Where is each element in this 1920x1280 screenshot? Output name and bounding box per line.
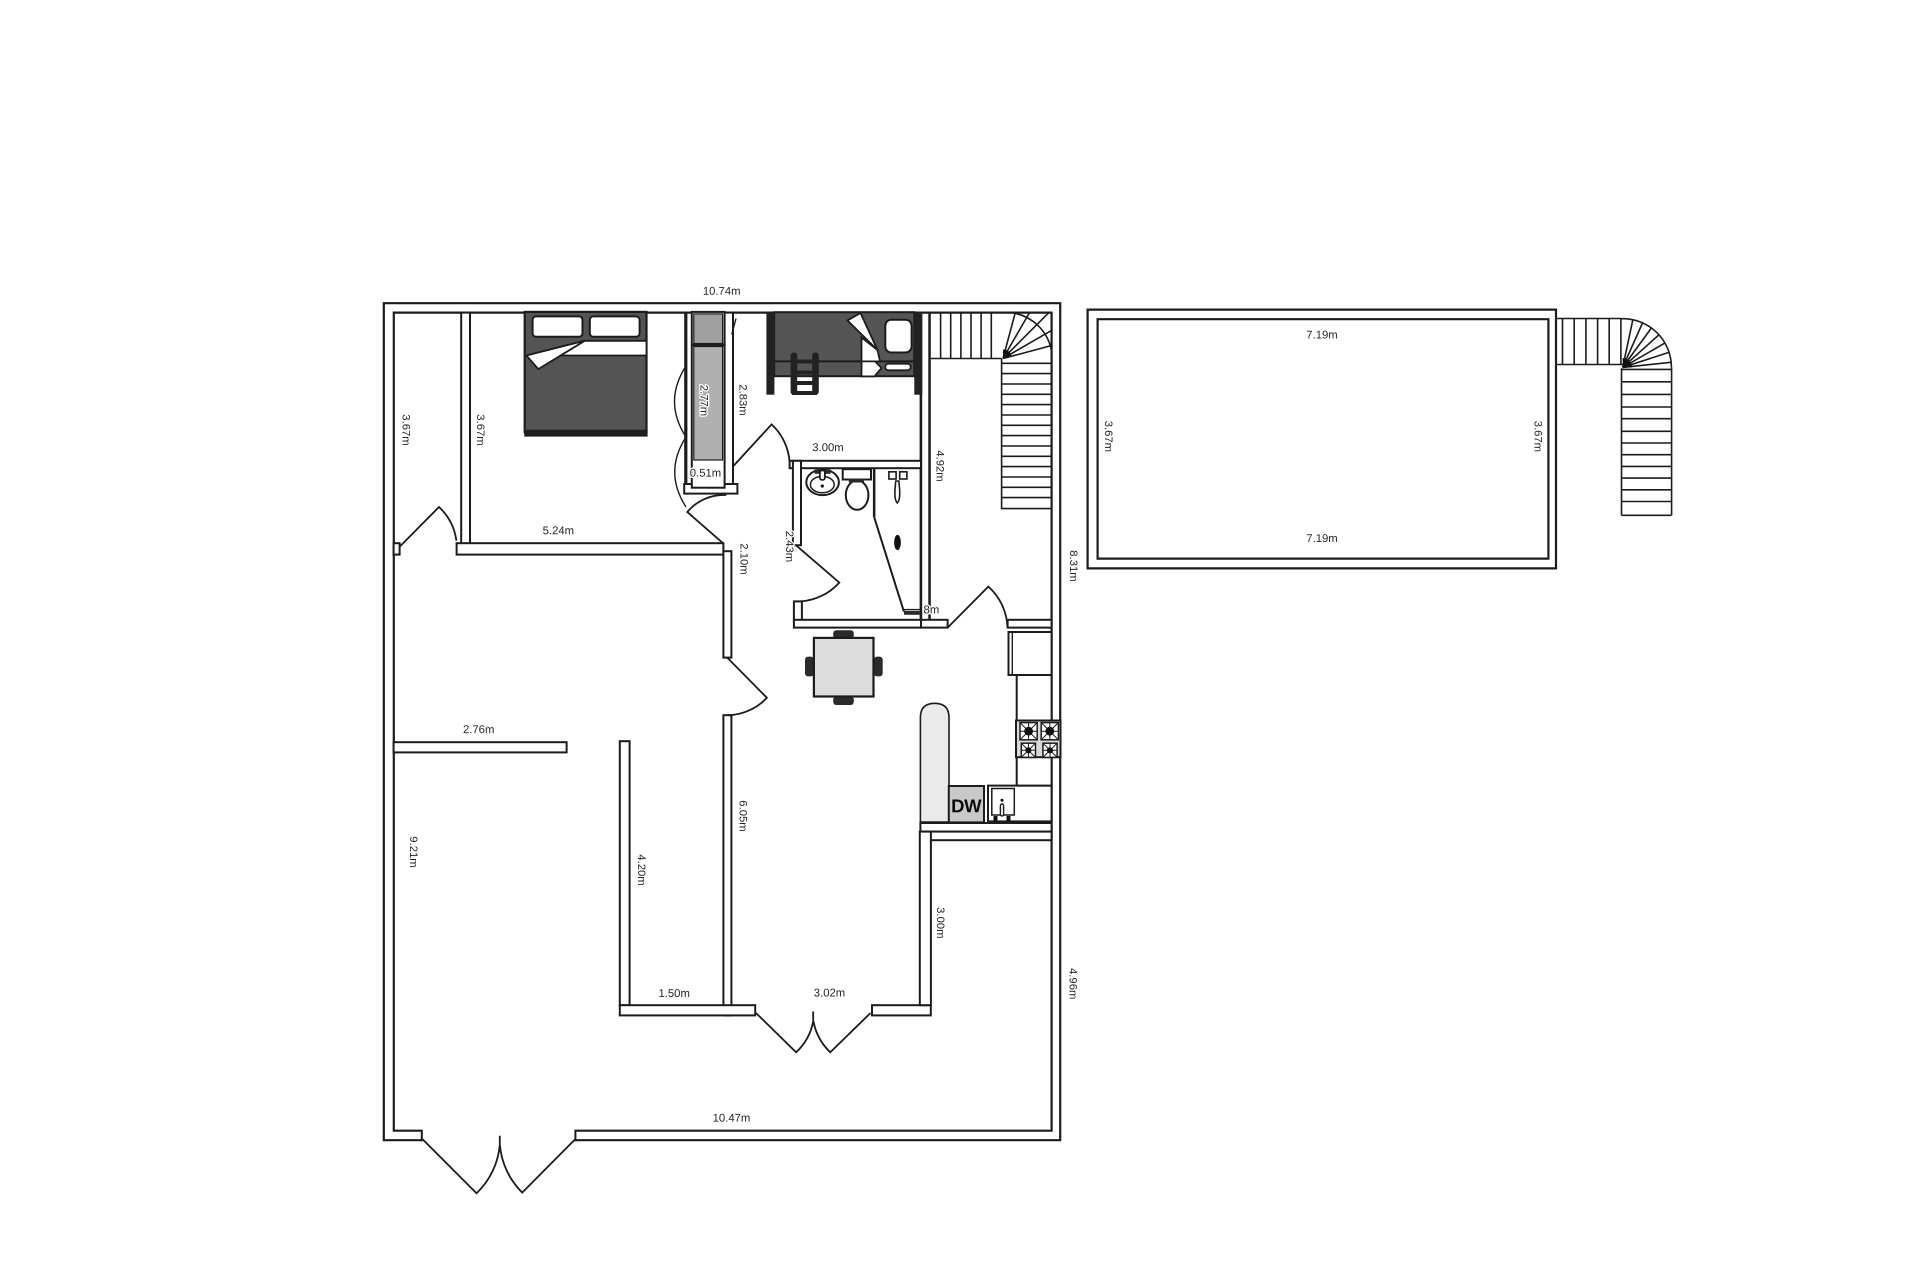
svg-text:8.31m: 8.31m — [1067, 550, 1079, 581]
svg-text:4.20m: 4.20m — [635, 854, 647, 885]
svg-text:6.05m: 6.05m — [736, 800, 748, 831]
svg-text:3.67m: 3.67m — [400, 414, 412, 445]
svg-text:3.00m: 3.00m — [812, 442, 843, 454]
svg-text:8m: 8m — [924, 604, 940, 616]
svg-text:0.51m: 0.51m — [690, 468, 721, 480]
svg-text:1.50m: 1.50m — [658, 988, 689, 1000]
svg-text:3.67m: 3.67m — [1102, 421, 1114, 452]
svg-text:2.10m: 2.10m — [737, 543, 749, 574]
svg-text:5.24m: 5.24m — [543, 525, 574, 537]
svg-text:2.83m: 2.83m — [737, 384, 749, 415]
svg-text:3.02m: 3.02m — [814, 987, 845, 999]
svg-text:4.96m: 4.96m — [1067, 968, 1079, 999]
svg-text:3.67m: 3.67m — [1532, 421, 1544, 452]
svg-text:10.47m: 10.47m — [713, 1113, 751, 1125]
svg-text:10.74m: 10.74m — [703, 286, 741, 298]
svg-text:2.76m: 2.76m — [463, 724, 494, 736]
svg-text:2.43m: 2.43m — [783, 531, 795, 562]
svg-text:9.21m: 9.21m — [407, 836, 419, 867]
svg-text:4.92m: 4.92m — [934, 450, 946, 481]
svg-text:2.77m: 2.77m — [698, 385, 710, 416]
svg-text:3.67m: 3.67m — [474, 414, 486, 445]
svg-text:DW: DW — [951, 795, 982, 816]
svg-text:7.19m: 7.19m — [1306, 533, 1337, 545]
svg-text:7.19m: 7.19m — [1306, 329, 1337, 341]
svg-text:3.00m: 3.00m — [934, 907, 946, 938]
